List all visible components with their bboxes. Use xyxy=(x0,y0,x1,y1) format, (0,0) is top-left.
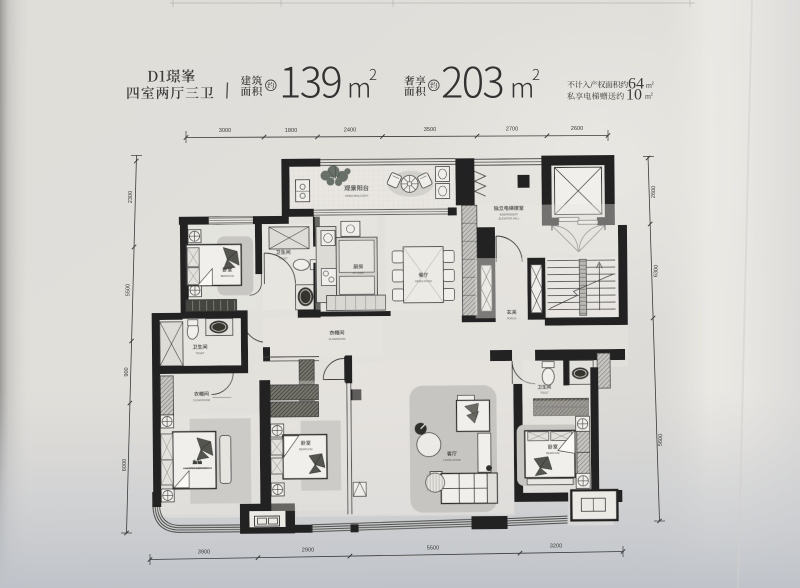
svg-text:INDEPENDENT: INDEPENDENT xyxy=(500,212,519,216)
svg-text:2400: 2400 xyxy=(344,128,356,134)
svg-text:BEDROOM: BEDROOM xyxy=(546,451,559,455)
svg-text:6000: 6000 xyxy=(122,459,128,471)
svg-text:2300: 2300 xyxy=(128,191,134,203)
svg-text:2900: 2900 xyxy=(302,548,314,554)
svg-text:TOILET: TOILET xyxy=(540,392,549,395)
svg-text:3500: 3500 xyxy=(424,127,436,133)
svg-text:10: 10 xyxy=(626,87,642,104)
svg-text:KITCHEN: KITCHEN xyxy=(353,271,365,275)
svg-text:3900: 3900 xyxy=(198,550,210,556)
svg-text:5500: 5500 xyxy=(126,284,132,296)
svg-text:PORCH: PORCH xyxy=(507,316,517,320)
svg-text:6300: 6300 xyxy=(653,265,659,278)
svg-text:BEDROOM: BEDROOM xyxy=(221,274,234,278)
svg-text:3000: 3000 xyxy=(219,128,231,134)
svg-text:CLOAKROOM: CLOAKROOM xyxy=(193,398,210,402)
svg-text:BEDROOM: BEDROOM xyxy=(299,447,312,451)
svg-text:2600: 2600 xyxy=(571,126,583,132)
svg-text:TOILET: TOILET xyxy=(195,351,204,355)
svg-text:5600: 5600 xyxy=(658,434,664,447)
svg-text:CLOAKROOM: CLOAKROOM xyxy=(328,337,345,341)
svg-text:MASTER BEDROOM: MASTER BEDROOM xyxy=(186,467,209,470)
svg-text:ELEVATOR HALL: ELEVATOR HALL xyxy=(499,216,520,220)
svg-text:DINING ROOM: DINING ROOM xyxy=(415,280,432,283)
svg-text:OPEN BALCONY: OPEN BALCONY xyxy=(345,194,369,198)
svg-text:1800: 1800 xyxy=(285,128,297,134)
svg-text:900: 900 xyxy=(124,367,130,376)
svg-text:LIVING ROOM: LIVING ROOM xyxy=(443,458,460,462)
svg-text:3200: 3200 xyxy=(550,544,562,550)
svg-text:2700: 2700 xyxy=(506,127,518,133)
svg-text:5500: 5500 xyxy=(427,546,439,552)
svg-text:2600: 2600 xyxy=(651,186,657,199)
